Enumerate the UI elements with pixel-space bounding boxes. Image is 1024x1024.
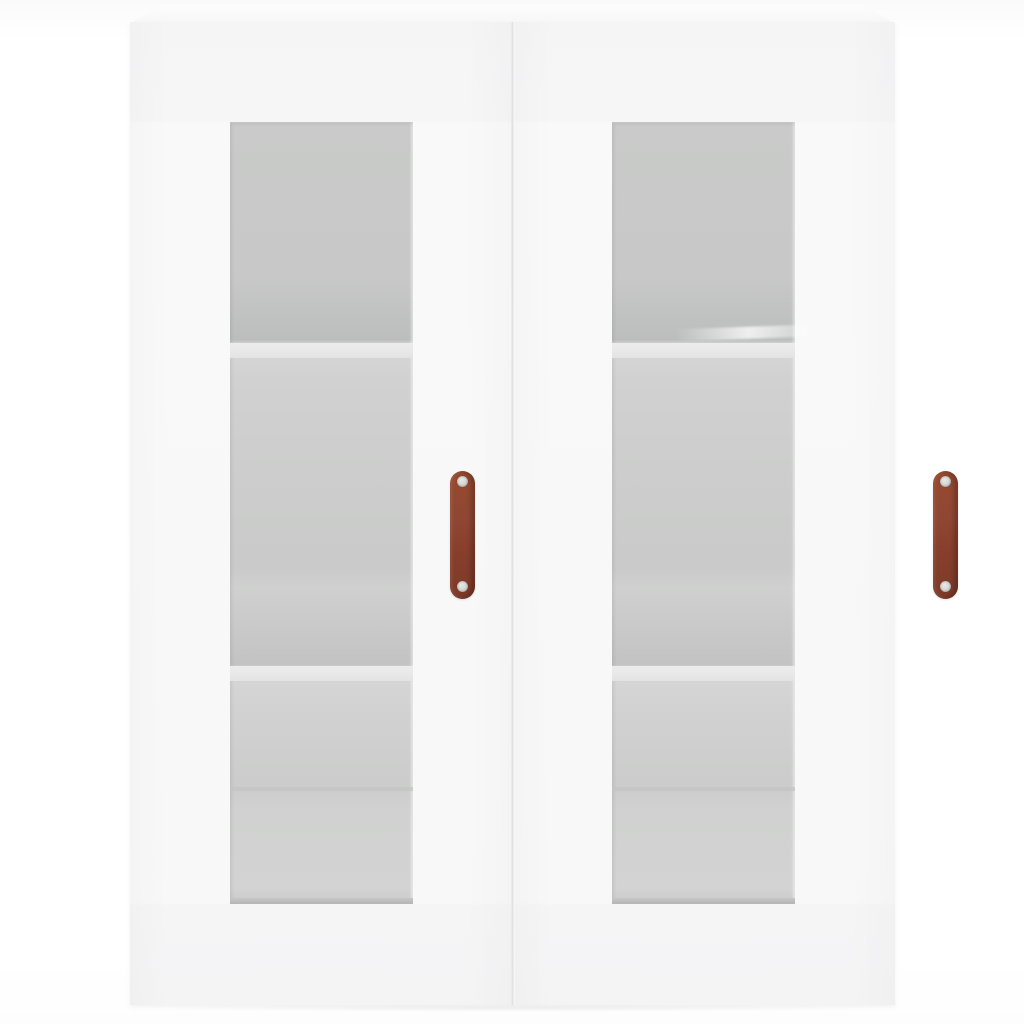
cabinet-top-panel (130, 4, 895, 23)
shelf-line-faint-right (612, 787, 795, 791)
glass-reflection-streak (676, 325, 808, 342)
product-photo-scene (0, 0, 1024, 1024)
handle-screw-top-left (457, 476, 468, 487)
cabinet-drop-shadow (150, 1004, 875, 1012)
shelf-line-faint-left (230, 787, 413, 791)
glass-bottom-shadow-left (230, 898, 413, 904)
glass-panel-right (612, 122, 795, 904)
wall-cabinet (130, 22, 895, 1005)
shelf-front-edge-upper-right (612, 343, 795, 358)
cabinet-door-right (515, 22, 895, 1005)
handle-screw-bottom-left (457, 581, 468, 592)
shelf-front-edge-lower-left (230, 666, 413, 681)
door-handle-left (450, 471, 475, 599)
shelf-front-edge-lower-right (612, 666, 795, 681)
glass-bottom-shadow-right (612, 898, 795, 904)
glass-panel-left (230, 122, 413, 904)
door-handle-right (933, 471, 958, 599)
handle-screw-bottom-right (940, 581, 951, 592)
cabinet-door-left (130, 22, 511, 1005)
shelf-front-edge-upper-left (230, 343, 413, 358)
handle-screw-top-right (940, 476, 951, 487)
